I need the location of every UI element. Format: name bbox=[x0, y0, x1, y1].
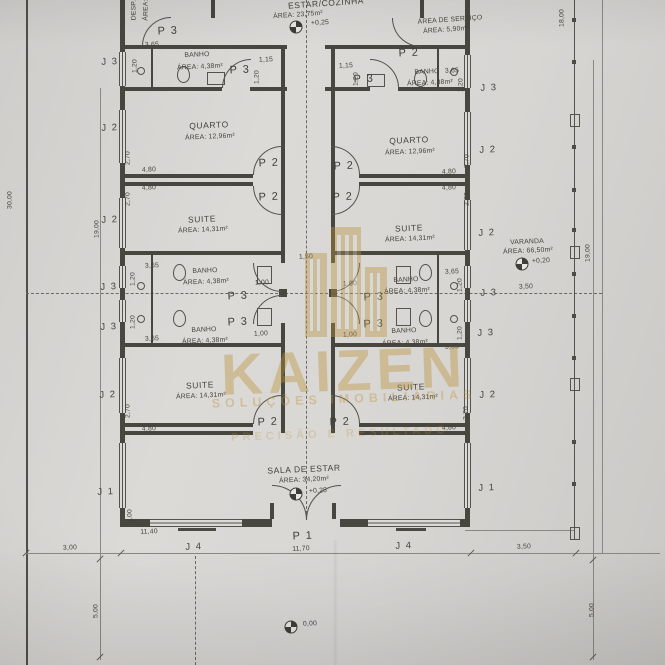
dim-label: 19,00 bbox=[585, 244, 592, 262]
dim-label: 1,00 bbox=[343, 331, 357, 339]
window-j3 bbox=[119, 266, 126, 288]
window-j1 bbox=[464, 443, 471, 508]
door-label-p1-entrada: P 1 bbox=[292, 530, 313, 543]
pillar bbox=[570, 246, 580, 259]
room-suite-right2-area: ÁREA: 14,31m² bbox=[388, 393, 438, 402]
dim-label: 5,00 bbox=[93, 604, 100, 618]
wall bbox=[250, 87, 287, 91]
room-quarto-right-name: QUARTO bbox=[389, 134, 429, 146]
room-sala-name: SALA DE ESTAR bbox=[267, 462, 341, 475]
room-varanda-name: VARANDA bbox=[510, 238, 544, 246]
door-label-p3-despensa: P 3 bbox=[157, 25, 178, 38]
dim-label: 2,70 bbox=[463, 406, 470, 420]
dim-label: 1,20 bbox=[132, 59, 139, 73]
dim-label: 1,50 bbox=[299, 253, 313, 261]
dim-label: 2,70 bbox=[464, 154, 471, 168]
door-arc-p3-banho-mr2 bbox=[331, 295, 360, 324]
post bbox=[572, 60, 576, 64]
post bbox=[572, 356, 576, 360]
dimension-line-right bbox=[593, 60, 594, 660]
window-j3 bbox=[464, 55, 471, 88]
window-label-j3: J 3 bbox=[101, 56, 119, 68]
pillar bbox=[570, 527, 580, 540]
window-j2 bbox=[464, 358, 471, 413]
room-banho-tr-name: BANHO bbox=[414, 68, 439, 76]
dim-label: 1,20 bbox=[457, 278, 464, 292]
dim-label: 30,00 bbox=[7, 191, 14, 209]
window-label-j2: J 2 bbox=[478, 227, 496, 239]
room-suite-left1-name: SUITE bbox=[188, 213, 216, 224]
dim-label: 4,80 bbox=[442, 184, 456, 192]
window-label-j4: J 4 bbox=[185, 541, 203, 553]
wall bbox=[331, 251, 465, 255]
door-label-p2-sala-right: P 2 bbox=[329, 416, 350, 429]
floor-plan-photo: DESP.ÁREA:ESTAR/COZINHAÁREA: 23,75m²+0,2… bbox=[0, 0, 665, 665]
dim-label: 1,15 bbox=[339, 62, 353, 70]
post bbox=[572, 440, 576, 444]
post bbox=[572, 188, 576, 192]
room-suite-right1-name: SUITE bbox=[395, 222, 423, 233]
door-label-p3-banho-mr2: P 3 bbox=[363, 318, 384, 331]
dim-label: 1,00 bbox=[343, 280, 357, 288]
dim-label: 4,80 bbox=[142, 425, 156, 433]
door-label-p2-suite-right: P 2 bbox=[332, 191, 353, 204]
lot-boundary-right bbox=[602, 0, 603, 553]
wall bbox=[211, 0, 215, 18]
door-label-p3-banho-mr1: P 3 bbox=[363, 291, 384, 304]
level-marker-icon bbox=[290, 21, 303, 34]
room-varanda-area: ÁREA: 66,50m² bbox=[503, 246, 553, 255]
room-quarto-right-area: ÁREA: 12,96m² bbox=[385, 147, 435, 156]
window-label-j1: J 1 bbox=[97, 486, 115, 498]
dim-label: 3,65 bbox=[445, 268, 459, 276]
dim-label: 1,20 bbox=[458, 78, 465, 92]
window-j3 bbox=[464, 266, 471, 288]
dim-label: 1,00 bbox=[254, 330, 268, 338]
window-j2 bbox=[464, 200, 471, 250]
dim-label: 3,00 bbox=[127, 509, 134, 523]
dim-label: 5,00 bbox=[589, 603, 596, 617]
room-estar-cozinha-name: ESTAR/COZINHA bbox=[288, 0, 365, 11]
room-banho-mr1-name: BANHO bbox=[393, 276, 418, 284]
wall bbox=[120, 431, 253, 435]
window-sill bbox=[396, 528, 426, 531]
dim-label: 3,00 bbox=[63, 544, 77, 552]
window-label-j3: J 3 bbox=[480, 287, 498, 299]
dim-label: 4,80 bbox=[442, 424, 456, 432]
door-label-p3-banho-tl: P 3 bbox=[229, 64, 250, 77]
axis-line-below-house bbox=[195, 556, 196, 665]
room-banho-ml2-name: BANHO bbox=[191, 326, 216, 334]
dim-label: 1,20 bbox=[457, 326, 464, 340]
dimension-line-left bbox=[100, 88, 101, 660]
door-label-p3-banho-ml2: P 3 bbox=[227, 316, 248, 329]
level-label-varanda: +0,20 bbox=[532, 257, 550, 265]
dim-label: 3,50 bbox=[519, 283, 533, 291]
wall bbox=[437, 251, 439, 343]
pillar bbox=[570, 114, 580, 127]
toilet-icon bbox=[419, 310, 432, 327]
shower-icon bbox=[207, 72, 225, 85]
dim-label: 1,00 bbox=[255, 279, 269, 287]
dim-label: 3,65 bbox=[145, 335, 159, 343]
post bbox=[572, 272, 576, 276]
sink-icon bbox=[137, 282, 145, 290]
dim-label: 3,65 bbox=[445, 343, 459, 351]
post bbox=[572, 145, 576, 149]
window-j4 bbox=[150, 519, 242, 527]
post bbox=[572, 18, 576, 22]
level-marker-icon bbox=[285, 621, 298, 634]
window-label-j4: J 4 bbox=[395, 540, 413, 552]
window-label-j2: J 2 bbox=[101, 122, 119, 134]
shower-icon bbox=[396, 308, 411, 326]
wall bbox=[325, 45, 465, 49]
dim-label: 2,70 bbox=[125, 404, 132, 418]
level-label-sala: +0,25 bbox=[309, 487, 327, 495]
colonnade-line bbox=[574, 0, 575, 540]
door-label-p3-banho-ml1: P 3 bbox=[227, 290, 248, 303]
window-label-j2: J 2 bbox=[479, 389, 497, 401]
pillar bbox=[570, 378, 580, 391]
door-arc-p2-servico bbox=[392, 18, 421, 47]
dim-label: 1,20 bbox=[130, 272, 137, 286]
room-area-servico-name: ÁREA DE SERVIÇO bbox=[417, 14, 482, 26]
room-banho-mr1-area: ÁREA: 4,38m² bbox=[384, 287, 430, 296]
window-label-j2: J 2 bbox=[479, 144, 497, 156]
room-suite-right1-area: ÁREA: 14,31m² bbox=[385, 234, 435, 243]
room-banho-ml1-area: ÁREA: 4,38m² bbox=[183, 278, 229, 287]
level-marker-icon bbox=[516, 258, 529, 271]
room-banho-tl-name: BANHO bbox=[184, 51, 209, 59]
dim-label: 3,65 bbox=[145, 41, 159, 49]
level-label-estar: +0,25 bbox=[311, 19, 329, 27]
window-j3 bbox=[464, 300, 471, 322]
room-suite-left2-area: ÁREA: 14,31m² bbox=[176, 391, 226, 400]
toilet-icon bbox=[419, 264, 432, 281]
post bbox=[572, 228, 576, 232]
window-sill bbox=[178, 528, 216, 531]
dim-label: 4,80 bbox=[142, 184, 156, 192]
room-banho-ml1-name: BANHO bbox=[192, 267, 217, 275]
room-quarto-left-area: ÁREA: 12,96m² bbox=[185, 132, 235, 141]
door-label-p2-quarto-left: P 2 bbox=[258, 157, 279, 170]
window-j4 bbox=[368, 519, 460, 527]
dim-label: 1,15 bbox=[259, 56, 273, 64]
toilet-icon bbox=[173, 310, 186, 327]
room-banho-tl-area: ÁREA: 4,38m² bbox=[177, 63, 223, 72]
dim-label: 4,80 bbox=[142, 166, 156, 174]
wall bbox=[420, 0, 424, 18]
window-label-j1: J 1 bbox=[478, 482, 496, 494]
dim-label: 1,20 bbox=[254, 70, 261, 84]
window-label-j3: J 3 bbox=[100, 321, 118, 333]
room-quarto-left-name: QUARTO bbox=[189, 119, 229, 131]
room-despensa-name: DESP. bbox=[131, 0, 138, 20]
room-banho-mr2-name: BANHO bbox=[391, 327, 416, 335]
room-suite-left2-name: SUITE bbox=[186, 379, 214, 390]
window-j1 bbox=[119, 443, 126, 508]
dim-label: 4,80 bbox=[442, 168, 456, 176]
room-sala-area: ÁREA: 34,20m² bbox=[279, 475, 329, 484]
post bbox=[572, 314, 576, 318]
wall bbox=[325, 87, 370, 91]
room-despensa-area: ÁREA: bbox=[143, 0, 150, 21]
floor-plan-drawing: DESP.ÁREA:ESTAR/COZINHAÁREA: 23,75m²+0,2… bbox=[0, 0, 665, 665]
room-suite-left1-area: ÁREA: 14,31m² bbox=[178, 225, 228, 234]
sink-icon bbox=[137, 315, 145, 323]
door-label-p2-suite-left: P 2 bbox=[258, 191, 279, 204]
dim-label: 2,70 bbox=[125, 192, 132, 206]
room-area-servico-area: ÁREA: 5,90m² bbox=[423, 25, 469, 35]
door-label-p2-servico: P 2 bbox=[398, 47, 419, 60]
dim-label: 2,70 bbox=[125, 151, 132, 165]
dim-label: 3,65 bbox=[445, 67, 459, 75]
room-suite-right2-name: SUITE bbox=[397, 381, 425, 392]
window-j3 bbox=[119, 300, 126, 322]
level-label-terreno: 0,00 bbox=[303, 620, 317, 628]
wall bbox=[151, 45, 153, 87]
dim-label: 11,70 bbox=[292, 545, 310, 553]
dim-label: 1,20 bbox=[353, 72, 360, 86]
door-label-p2-quarto-right: P 2 bbox=[333, 160, 354, 173]
varanda-floor-edge bbox=[465, 530, 574, 531]
dim-label: 19,00 bbox=[94, 220, 101, 238]
level-marker-icon bbox=[290, 488, 303, 501]
wall bbox=[120, 174, 253, 178]
wall bbox=[120, 87, 222, 91]
window-label-j2: J 2 bbox=[101, 214, 119, 226]
axis-line-horizontal bbox=[26, 293, 602, 294]
post bbox=[572, 482, 576, 486]
dim-label: 18,00 bbox=[559, 9, 566, 27]
dim-label: 2,70 bbox=[464, 192, 471, 206]
wall bbox=[359, 431, 465, 435]
door-label-p2-sala-left: P 2 bbox=[257, 416, 278, 429]
dim-label: 3,65 bbox=[145, 262, 159, 270]
dim-label: 11,40 bbox=[140, 528, 158, 536]
window-label-j2: J 2 bbox=[99, 389, 117, 401]
shower-icon bbox=[257, 308, 272, 326]
wall bbox=[120, 251, 285, 255]
window-label-j3: J 3 bbox=[100, 281, 118, 293]
wall bbox=[120, 182, 253, 186]
dim-label: 3,50 bbox=[517, 543, 531, 551]
window-label-j3: J 3 bbox=[480, 82, 498, 94]
wall bbox=[398, 87, 465, 91]
lot-boundary-left bbox=[26, 0, 28, 665]
wall bbox=[120, 423, 253, 427]
window-label-j3: J 3 bbox=[477, 327, 495, 339]
dim-label: 1,20 bbox=[130, 315, 137, 329]
window-j3 bbox=[119, 52, 126, 86]
sink-icon bbox=[450, 315, 458, 323]
